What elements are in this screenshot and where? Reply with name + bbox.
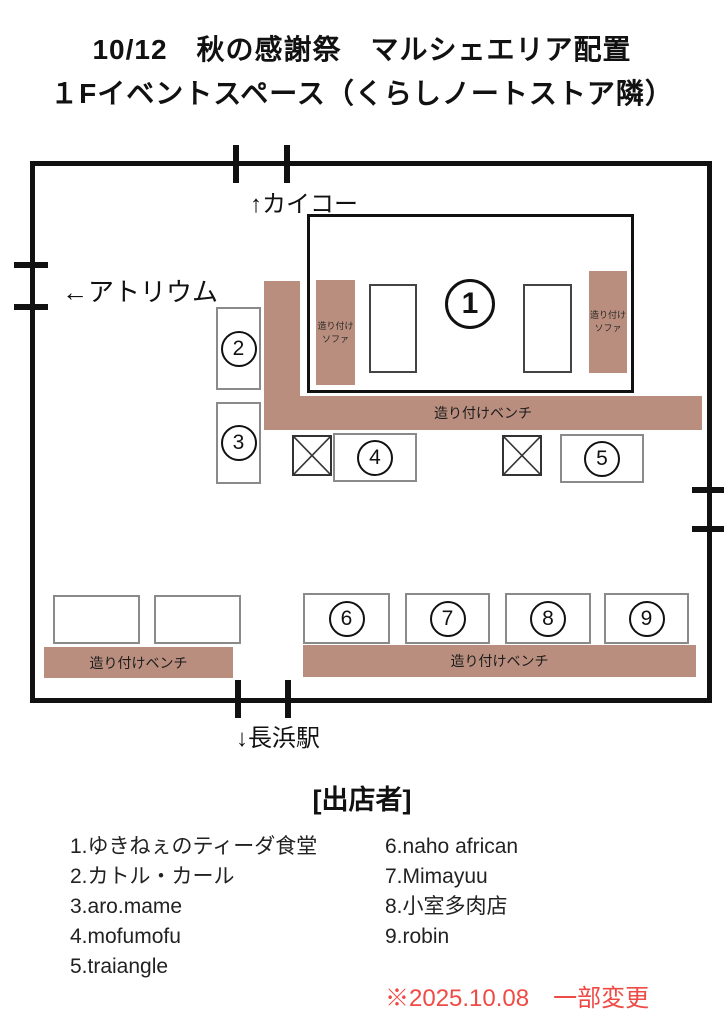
booth-number-6: 6 xyxy=(329,601,365,637)
x-icon xyxy=(504,437,540,474)
built-in-bench-horizontal: 造り付けベンチ xyxy=(264,396,702,430)
booth-box-7: 7 xyxy=(405,593,490,644)
revision-note: ※2025.10.08 一部変更 xyxy=(385,978,649,1013)
booth-box-8: 8 xyxy=(505,593,591,644)
sofa-label-line2: ソファ xyxy=(322,334,349,344)
table-rect-left xyxy=(369,284,417,373)
booth-number-4: 4 xyxy=(357,440,393,476)
sofa-label-line2: ソファ xyxy=(594,323,621,333)
booth-number-8: 8 xyxy=(530,601,566,637)
door-tick-left-upper xyxy=(14,262,48,268)
x-icon xyxy=(294,437,330,474)
table-rect-right xyxy=(523,284,572,373)
vendor-item-6: 6.naho african xyxy=(385,832,518,862)
vendor-item-4: 4.mofumofu xyxy=(70,922,317,952)
booth-box-2: 2 xyxy=(216,307,261,390)
vendor-item-2: 2.カトル・カール xyxy=(70,862,317,892)
door-tick-bottom-right xyxy=(285,680,291,718)
vendor-item-8: 8.小室多肉店 xyxy=(385,892,518,922)
vendors-header: [出店者] xyxy=(0,778,724,817)
booth-number-1: 1 xyxy=(445,279,495,329)
sofa-label-line1: 造り付け xyxy=(590,310,626,320)
booth-box-9: 9 xyxy=(604,593,689,644)
vendor-item-1: 1.ゆきねぇのティーダ食堂 xyxy=(70,832,317,862)
vendor-item-5: 5.traiangle xyxy=(70,952,317,982)
bench-label: 造り付けベンチ xyxy=(90,653,188,673)
built-in-sofa-right: 造り付け ソファ xyxy=(589,271,627,373)
door-tick-right-upper xyxy=(692,487,724,493)
booth-box-3: 3 xyxy=(216,402,261,484)
sofa-label-line1: 造り付け xyxy=(317,321,353,331)
door-tick-top-left xyxy=(233,145,239,183)
booth-number-2: 2 xyxy=(221,331,257,367)
sofa-label: 造り付け ソファ xyxy=(317,320,353,346)
door-tick-left-lower xyxy=(14,304,48,310)
door-tick-top-right xyxy=(284,145,290,183)
empty-box-1 xyxy=(53,595,140,644)
bench-label: 造り付けベンチ xyxy=(434,403,532,423)
vendor-item-3: 3.aro.mame xyxy=(70,892,317,922)
vendor-list-left: 1.ゆきねぇのティーダ食堂 2.カトル・カール 3.aro.mame 4.mof… xyxy=(70,832,317,982)
bench-label: 造り付けベンチ xyxy=(451,651,549,671)
door-tick-bottom-left xyxy=(235,680,241,718)
booth-box-4: 4 xyxy=(333,433,417,482)
built-in-bench-bottom-left: 造り付けベンチ xyxy=(44,647,233,678)
empty-box-2 xyxy=(154,595,241,644)
built-in-bench-bottom-right: 造り付けベンチ xyxy=(303,645,696,677)
label-exit-atrium: ←アトリウム xyxy=(62,272,218,309)
sofa-label: 造り付け ソファ xyxy=(590,309,626,335)
vendor-item-9: 9.robin xyxy=(385,922,518,952)
event-layout-poster: 10/12 秋の感謝祭 マルシェエリア配置 １Fイベントスペース（くらしノートス… xyxy=(0,0,724,1024)
label-exit-nagahama-station: ↓長浜駅 xyxy=(236,718,320,753)
vendor-item-7: 7.Mimayuu xyxy=(385,862,518,892)
vendor-list-right: 6.naho african 7.Mimayuu 8.小室多肉店 9.robin xyxy=(385,832,518,952)
booth-number-5: 5 xyxy=(584,441,620,477)
built-in-sofa-left: 造り付け ソファ xyxy=(316,280,355,385)
booth-box-5: 5 xyxy=(560,434,644,483)
booth-number-7: 7 xyxy=(430,601,466,637)
page-subtitle: １Fイベントスペース（くらしノートストア隣） xyxy=(0,72,724,112)
booth-box-6: 6 xyxy=(303,593,390,644)
x-marker-box-left xyxy=(292,435,332,476)
page-title: 10/12 秋の感謝祭 マルシェエリア配置 xyxy=(0,28,724,68)
booth-number-3: 3 xyxy=(221,425,257,461)
x-marker-box-right xyxy=(502,435,542,476)
booth-number-9: 9 xyxy=(629,601,665,637)
door-tick-right-lower xyxy=(692,526,724,532)
